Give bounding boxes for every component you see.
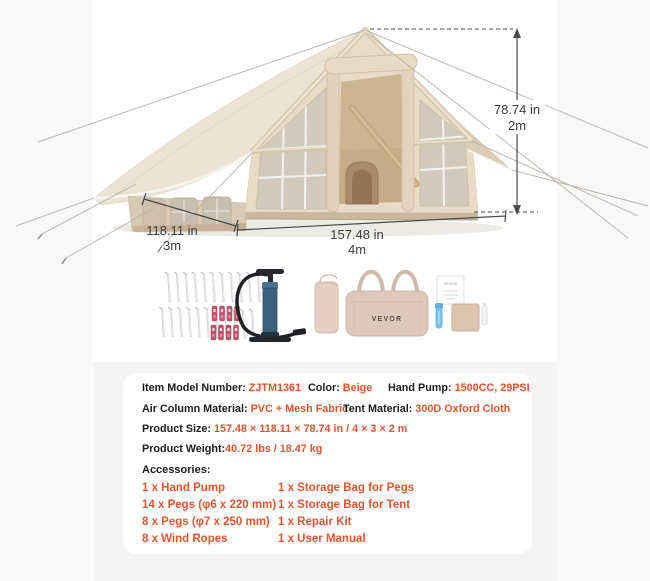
accessories-list-left: 1 x Hand Pump 14 x Pegs (φ6 x 220 mm) 8 … [142,480,276,548]
spec-label: Product Size: [142,423,214,435]
accessory-item: 1 x Hand Pump [142,480,276,497]
hand-pump-icon [237,269,306,342]
accessory-item: 1 x Storage Bag for Pegs [278,480,414,497]
manual-brand-label: VEVOR [443,281,457,286]
spec-item-air-column-material: Air Column Material: PVC + Mesh Fabric [142,403,348,415]
tent-bag-icon: VEVOR [346,272,428,336]
spec-label: Item Model Number: [142,382,249,394]
spec-label: Air Column Material: [142,403,251,415]
glue-stick-icon [435,303,443,328]
tent-door-tube-right [402,64,414,212]
accessory-item: 8 x Pegs (φ7 x 250 mm) [142,514,276,531]
accessories-list-right: 1 x Storage Bag for Pegs 1 x Storage Bag… [278,480,414,548]
tent-door-tube-left [327,70,339,212]
spec-row-model-color-pump: Item Model Number: ZJTM1361 Color: Beige… [142,382,524,396]
accessory-item: 1 x Repair Kit [278,514,414,531]
width-metric-label: 4m [348,242,366,257]
accessory-item: 1 x User Manual [278,531,414,548]
accessory-item: 14 x Pegs (φ6 x 220 mm) [142,497,276,514]
spec-label: Hand Pump: [388,382,455,394]
spec-value: 1500CC, 29PSI [455,382,530,394]
spec-item-product-weight: Product Weight:40.72 lbs / 18.47 kg [142,443,322,455]
spec-item-hand-pump: Hand Pump: 1500CC, 29PSI [388,382,530,394]
spec-card: Item Model Number: ZJTM1361 Color: Beige… [123,373,532,554]
spec-value: PVC + Mesh Fabric [251,403,349,415]
spec-value: 300D Oxford Cloth [415,403,510,415]
height-metric-label: 2m [508,118,526,133]
product-image-area: 78.74 in 2m 157.48 in 4m 118.11 in 3m [0,0,650,362]
spec-value: 40.72 lbs / 18.47 kg [225,443,322,455]
spec-item-model-number: Item Model Number: ZJTM1361 [142,382,301,394]
spec-value: ZJTM1361 [249,382,301,394]
tent-illustration: 78.74 in 2m 157.48 in 4m 118.11 in 3m [0,0,650,362]
accessory-item: 8 x Wind Ropes [142,531,276,548]
spec-row-size: Product Size: 157.48 × 118.11 × 78.74 in… [142,423,524,437]
spec-value: Beige [343,382,372,394]
depth-imperial-label: 118.11 in [146,223,198,238]
spec-panel: Item Model Number: ZJTM1361 Color: Beige… [93,362,557,581]
repair-patch-icon [452,304,479,331]
depth-metric-label: 3m [163,238,181,253]
accessory-item: 1 x Storage Bag for Tent [278,497,414,514]
tent-body [94,29,512,232]
tent-bag-brand-label: VEVOR [372,316,403,323]
spec-row-materials: Air Column Material: PVC + Mesh Fabric T… [142,403,524,417]
user-manual-icon: VEVOR [437,276,464,304]
width-imperial-label: 157.48 in [330,227,384,242]
spec-value: 157.48 × 118.11 × 78.74 in / 4 × 3 × 2 m [214,423,407,435]
spec-item-product-size: Product Size: 157.48 × 118.11 × 78.74 in… [142,423,407,435]
accessories-visual: VEVOR VEVOR [159,269,487,342]
spec-label: Tent Material: [343,403,415,415]
spec-label: Color: [308,382,343,394]
spec-label: Product Weight: [142,443,225,455]
accessories-heading: Accessories: [142,464,211,476]
spec-item-color: Color: Beige [308,382,372,394]
pegs-bag-icon [315,275,338,333]
spec-item-tent-material: Tent Material: 300D Oxford Cloth [343,403,510,415]
repair-tube-icon [482,303,487,325]
height-imperial-label: 78.74 in [494,102,540,117]
spec-row-weight: Product Weight:40.72 lbs / 18.47 kg [142,443,524,457]
